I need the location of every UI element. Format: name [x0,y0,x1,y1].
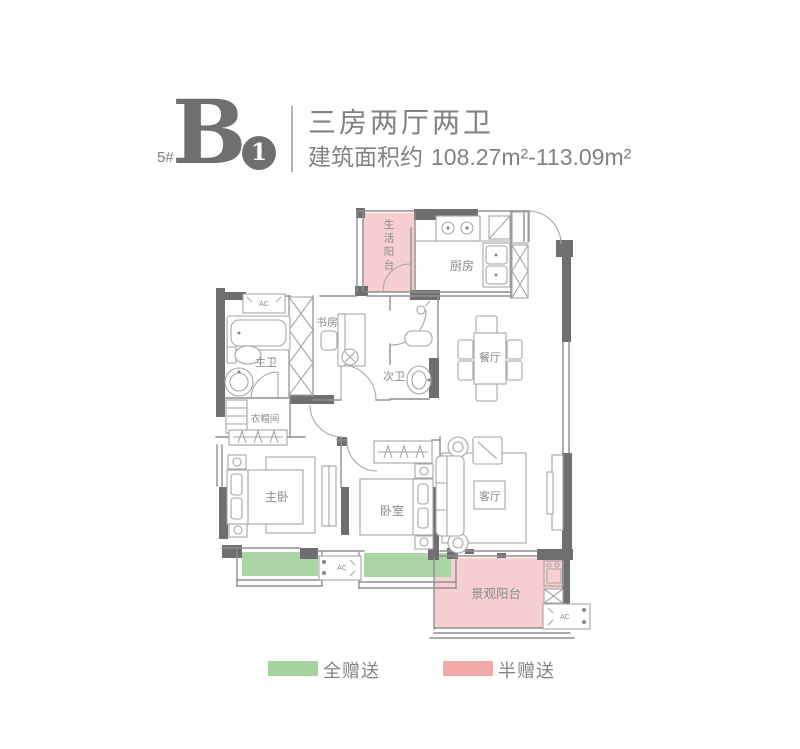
nightstand [228,455,246,469]
bay-ac-unit: AC [319,556,361,580]
sofa [436,456,464,536]
bathtub [227,316,290,350]
label-bedroom: 卧室 [380,503,404,518]
legend-swatch-half-gift [443,661,493,676]
hall-door-arc [310,405,342,437]
svg-text:AC: AC [259,301,269,308]
toilet [405,331,432,346]
nightstand [415,464,433,478]
bedroom-furniture [360,441,433,549]
label-master-bedroom: 主卧 [265,490,289,504]
chair [476,384,497,401]
entry-door-arc [528,211,561,244]
label-second-bath: 次卫 [383,369,405,383]
basin [407,366,431,394]
shaft-center [289,297,313,395]
kitchen-sink [483,243,510,287]
legend-label-half-gift: 半赠送 [498,657,555,683]
label-living: 客厅 [479,489,501,503]
legend-swatch-full-gift [268,661,318,676]
bedroom-door-arc [347,441,377,471]
chair [321,331,337,350]
second-bath-fixtures [405,301,432,394]
tv [547,472,553,514]
side-table [448,437,468,457]
shaft-kitchen [512,212,528,298]
shower-head [417,306,425,314]
label-dining: 餐厅 [479,350,501,364]
tv-cabinet [552,455,563,530]
chair [458,361,473,380]
chair [507,340,522,359]
svg-text:AC: AC [337,565,347,572]
legend-label-full-gift: 全赠送 [323,657,380,683]
label-view-balcony: 景观阳台 [471,586,521,601]
master-bath-door-arc [251,372,278,399]
chair [507,361,522,380]
kitchen-fixtures [415,216,511,287]
label-kitchen: 厨房 [450,258,474,273]
label-study: 书房 [316,316,338,329]
floorplan-page: 5# B 1 三房两厅两卫 建筑面积约108.27m²-113.09m² [0,0,800,749]
study-door-arc [341,365,376,400]
label-cloakroom: 衣帽间 [251,413,280,425]
floorplan-drawing: AC [0,0,800,749]
chair [476,316,497,333]
svg-text:AC: AC [560,614,570,621]
chair [458,340,473,359]
label-master-bath: 主卫 [255,356,277,369]
